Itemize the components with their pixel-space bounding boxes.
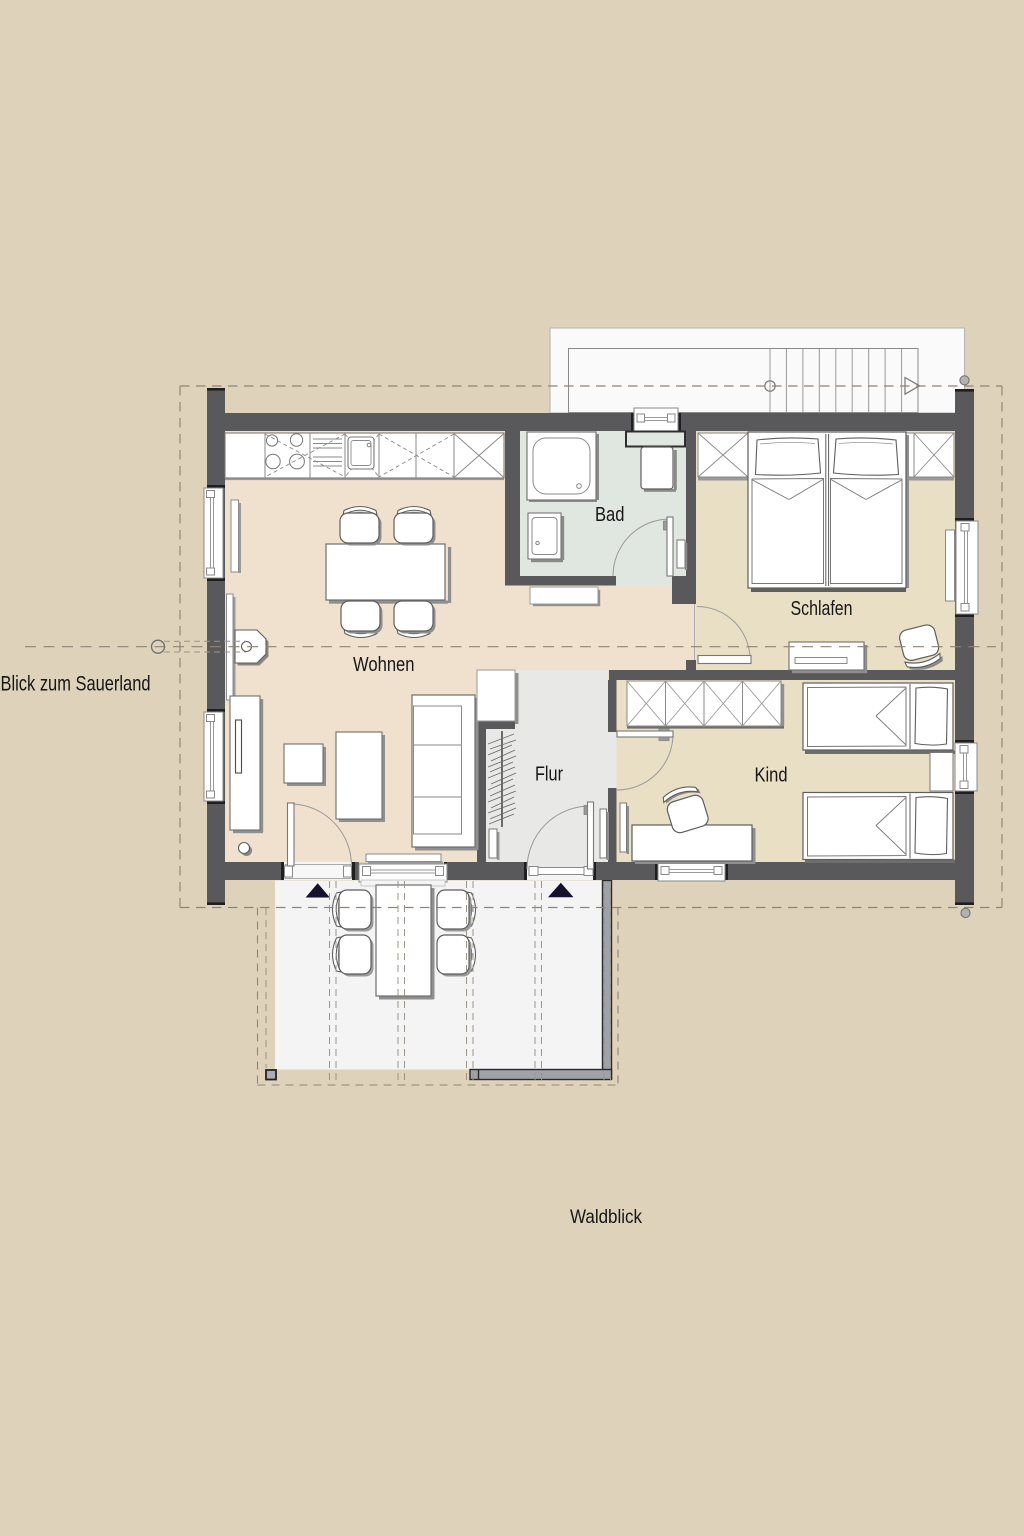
svg-text:Blick zum Sauerland: Blick zum Sauerland <box>1 671 151 695</box>
svg-text:Bad: Bad <box>595 503 625 526</box>
svg-text:Schlafen: Schlafen <box>791 597 853 620</box>
svg-text:Waldblick: Waldblick <box>570 1207 642 1228</box>
svg-text:Kind: Kind <box>755 764 788 787</box>
svg-text:Flur: Flur <box>535 763 563 786</box>
svg-text:Wohnen: Wohnen <box>353 653 415 676</box>
